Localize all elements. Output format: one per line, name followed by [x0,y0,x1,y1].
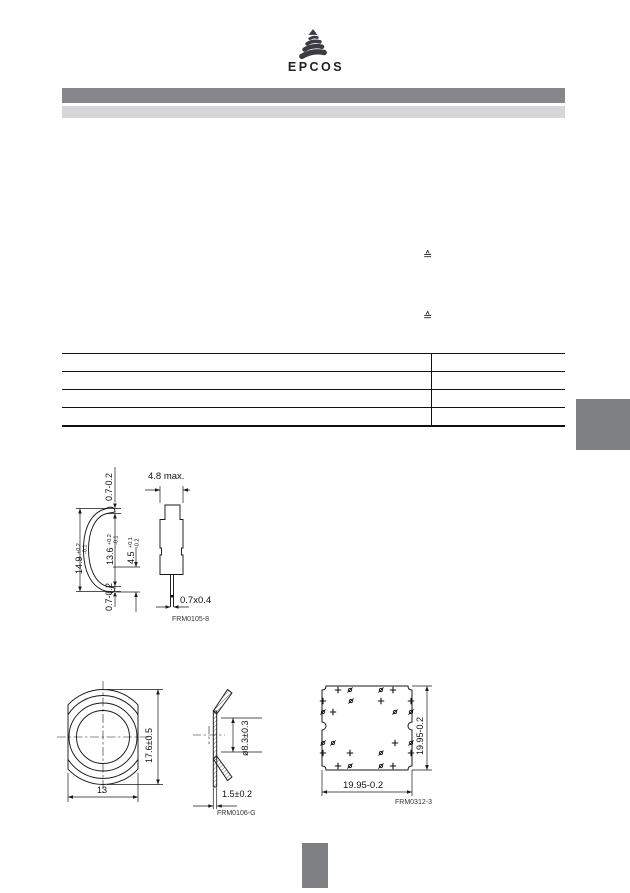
diameter-mark [320,709,325,714]
solder-cross-mark [320,698,326,704]
solder-cross-mark [347,750,353,756]
diameter-mark [347,687,352,692]
dim-width: 13 [97,785,107,795]
solder-cross-mark [390,763,396,769]
header-bar-primary [62,88,565,103]
drawing-label: FRM0105-8 [172,616,209,623]
diameter-mark [408,740,413,745]
solder-cross-mark [408,750,414,756]
table-row [62,408,565,426]
table-row [62,390,565,408]
logo-triangle [309,29,318,35]
datasheet-page: EPCOS ≙ ≙ [0,0,630,893]
diameter-mark [330,740,335,745]
header-bar-secondary [62,106,565,118]
dim-thickness: 1.5±0.2 [222,789,252,799]
dim-bottom-tab: 0.7-0.2 [104,583,114,611]
center-lines [57,681,149,793]
page-footer-block [302,843,328,888]
svg-text:+0.2: +0.2 [76,543,82,554]
svg-text:-0.2: -0.2 [135,539,141,548]
svg-text:-0.1: -0.1 [83,545,89,554]
drawing-component-top-view: 17.6±0.5 13 [55,675,190,810]
dim-body-height-group: 13.6 +0.2 -0.1 [105,534,120,565]
chapter-side-tab [576,399,630,450]
dim-width: 19.95-0.2 [343,780,383,791]
corresponds-symbol: ≙ [423,250,432,263]
diameter-mark [378,763,383,768]
drawing-label: FRM0312-3 [395,799,432,806]
diameter-mark [378,687,383,692]
dim-width-max: 4.8 max. [148,471,184,482]
table-row [62,372,565,390]
table-row [62,354,565,372]
svg-text:+0.2: +0.2 [107,534,113,545]
plate-outline [322,686,412,770]
drawing-pcb-layout: 19.95-0.2 19.95-0.2 FRM0312-3 [310,660,460,810]
solder-cross-mark [335,687,341,693]
dim-height: 17.6±0.5 [144,728,154,763]
svg-text:-0.1: -0.1 [114,536,120,545]
solder-cross-mark [378,698,384,704]
dim-top-tab: 0.7-0.2 [104,473,114,501]
table-column-divider [431,354,432,426]
drawing-label: FRM0106-G [217,810,256,817]
diameter-mark [320,740,325,745]
svg-text:14.9: 14.9 [74,556,84,574]
drawing-component-side-view: 0.7-0.2 14.9 +0.2 -0.1 13.6 +0.2 -0.1 4.… [68,455,253,640]
spec-table [62,353,565,427]
corresponds-symbol: ≙ [423,311,432,324]
lead-crimp [171,595,174,598]
dim-lead-cross-section: 0.7x0.4 [180,595,211,606]
solder-cross-mark [335,763,341,769]
solder-cross-mark [390,687,396,693]
svg-text:4.5: 4.5 [126,551,136,564]
dim-lead-length-group: 4.5 +0.1 -0.2 [126,537,141,564]
center-lines [193,726,225,744]
pcb-marks [320,687,414,769]
svg-text:+0.1: +0.1 [128,537,134,548]
epcos-logo-text: EPCOS [282,60,350,74]
diameter-mark [392,709,397,714]
diameter-mark [348,698,353,703]
diameter-mark [378,750,383,755]
drawing-washer-section: ø8.3±0.3 1.5±0.2 FRM0106-G [185,675,295,825]
dim-inner-diameter: ø8.3±0.3 [240,721,250,756]
front-view-outline [160,505,183,607]
solder-cross-mark [392,740,398,746]
solder-cross-mark [330,709,336,715]
solder-cross-mark [408,698,414,704]
epcos-logo-icon [297,28,329,60]
diameter-mark [347,763,352,768]
solder-cross-mark [320,750,326,756]
dim-height: 19.95-0.2 [415,717,425,755]
diameter-mark [408,709,413,714]
dimension-arrows [322,686,429,794]
svg-text:13.6: 13.6 [105,547,115,565]
washer-outline [213,690,232,788]
